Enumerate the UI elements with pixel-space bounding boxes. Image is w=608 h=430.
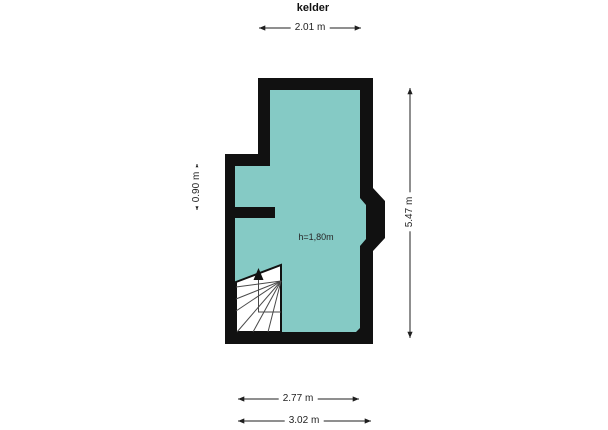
dimension-label-bottom-outer: 3.02 m bbox=[285, 415, 324, 427]
dimension-label-right: 5.47 m bbox=[404, 193, 416, 232]
dimension-label-bottom-inner: 2.77 m bbox=[279, 393, 318, 405]
room-height-label: h=1,80m bbox=[298, 232, 333, 242]
floorplan-canvas: kelder 2.01 m 0.90 m 5.47 m 2.77 m 3.02 … bbox=[0, 0, 608, 430]
dimension-label-top: 2.01 m bbox=[291, 22, 330, 34]
floorplan-drawing bbox=[0, 0, 608, 430]
page-title: kelder bbox=[297, 2, 329, 14]
dimension-label-left: 0.90 m bbox=[191, 168, 203, 207]
